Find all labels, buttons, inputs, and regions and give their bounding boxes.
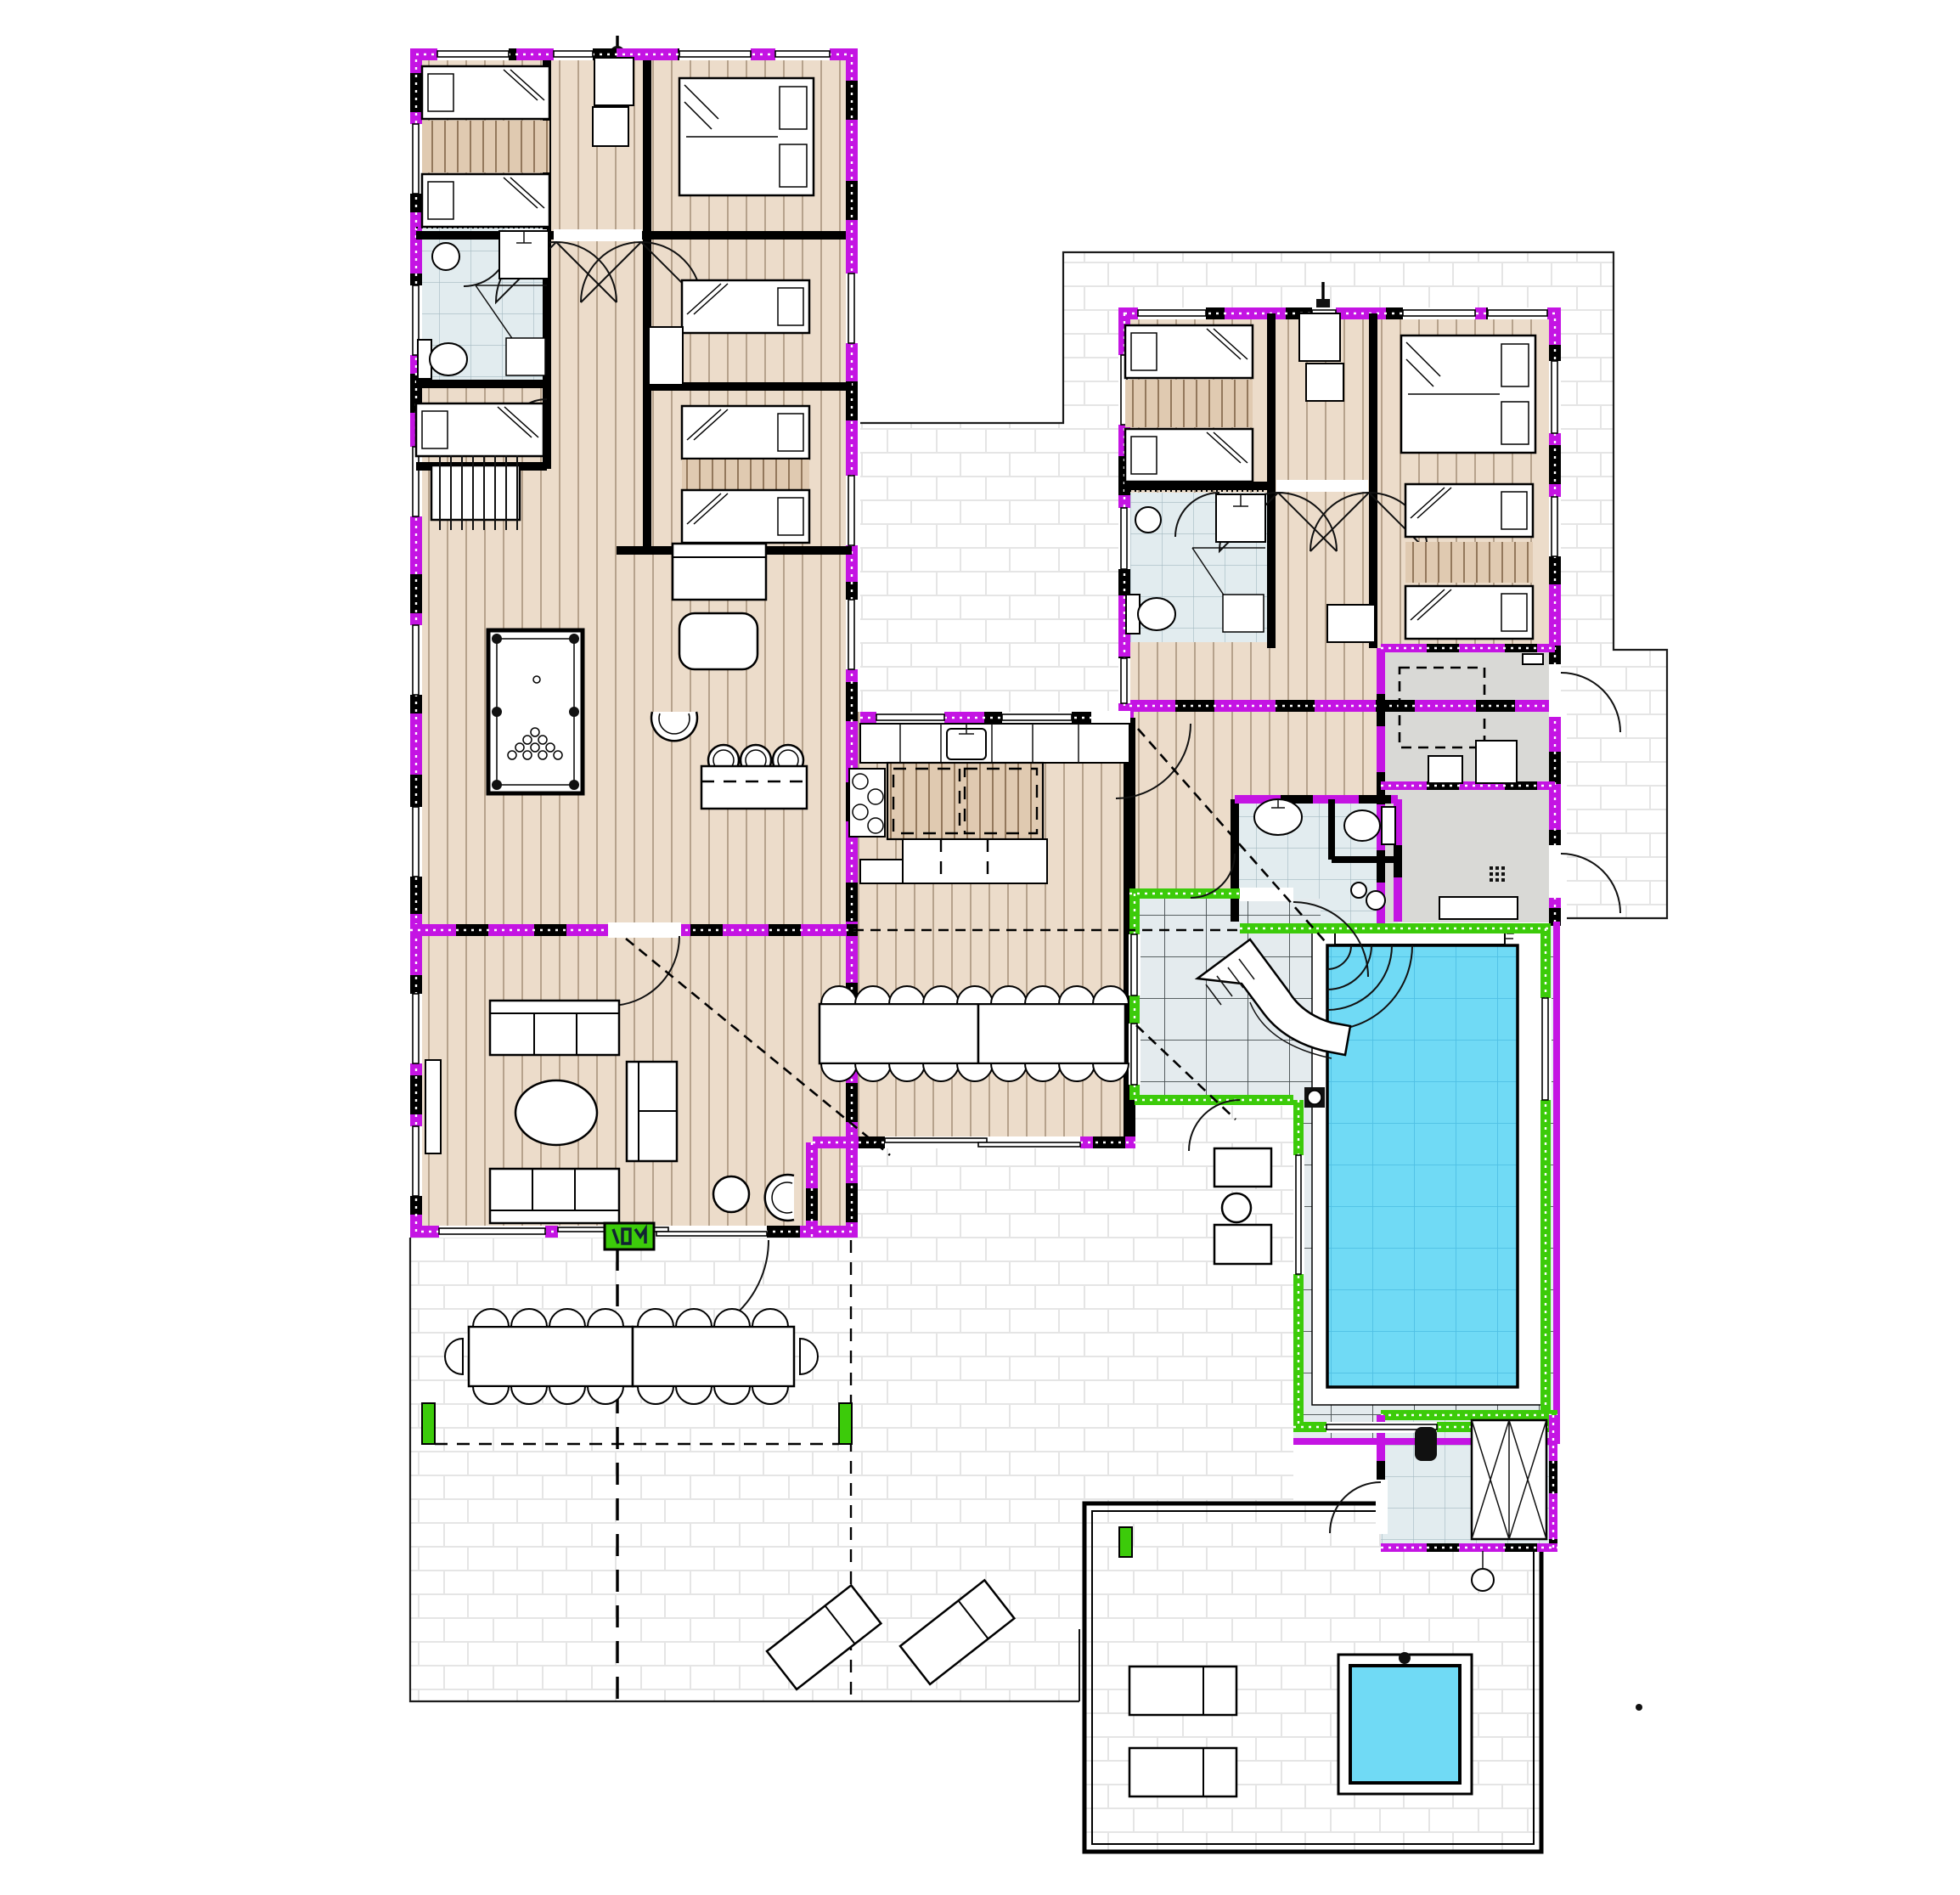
entry-marker: [605, 1223, 654, 1249]
pool-skimmer-lid: [1308, 1091, 1321, 1104]
hall-closet: [1306, 364, 1343, 401]
toilet: [1126, 595, 1175, 634]
dining-sliding-door: [885, 1136, 1080, 1148]
closet: [1327, 605, 1375, 642]
kitchen-hob: [849, 769, 885, 837]
washbasin: [1135, 507, 1161, 533]
armchair: [679, 613, 758, 669]
shower-drain: [1366, 891, 1385, 910]
toilet: [1344, 807, 1395, 844]
sofa: [490, 1001, 619, 1055]
water-heater: [1415, 1427, 1437, 1461]
sauna-bench: [1439, 897, 1518, 919]
coffee-table: [515, 1080, 597, 1145]
floor-drain: [1490, 866, 1505, 882]
pool-shower: [1351, 883, 1366, 898]
wardrobe: [1472, 1420, 1546, 1539]
pool-water: [1327, 945, 1518, 1387]
dining-table: [978, 1004, 1125, 1063]
floor-plan-page: [0, 0, 1960, 1895]
awning-post: [422, 1403, 435, 1444]
terrace-post: [1119, 1527, 1132, 1557]
outdoor-hot-tub: [1338, 1652, 1472, 1794]
foosball-table: [431, 455, 520, 530]
hall-closet: [593, 107, 628, 146]
billiard-table: [488, 630, 583, 793]
indoor-dining: [819, 986, 1129, 1081]
survey-dot: [1636, 1704, 1642, 1711]
hall-closet: [594, 58, 634, 105]
lounge-sliding-door: [558, 1226, 767, 1238]
hall-entry-opening: [1091, 711, 1130, 725]
double-bed: [1401, 336, 1535, 453]
loveseat: [627, 1062, 677, 1161]
floor-plan-canvas: [0, 0, 1960, 1895]
kitchen-island: [860, 763, 1047, 883]
kitchen-counter: [860, 724, 1129, 763]
bar-counter: [701, 766, 807, 809]
sofa: [490, 1169, 619, 1223]
double-bed: [679, 78, 814, 195]
toilet: [418, 340, 467, 379]
awning-post: [839, 1403, 852, 1444]
hall-closet: [1299, 313, 1340, 361]
tv-sideboard: [425, 1060, 441, 1153]
dining-table: [819, 1004, 978, 1063]
washbasin: [432, 243, 459, 270]
closet: [649, 327, 683, 385]
pouf: [713, 1176, 749, 1212]
desk: [673, 544, 766, 600]
outdoor-shower: [1472, 1569, 1494, 1591]
